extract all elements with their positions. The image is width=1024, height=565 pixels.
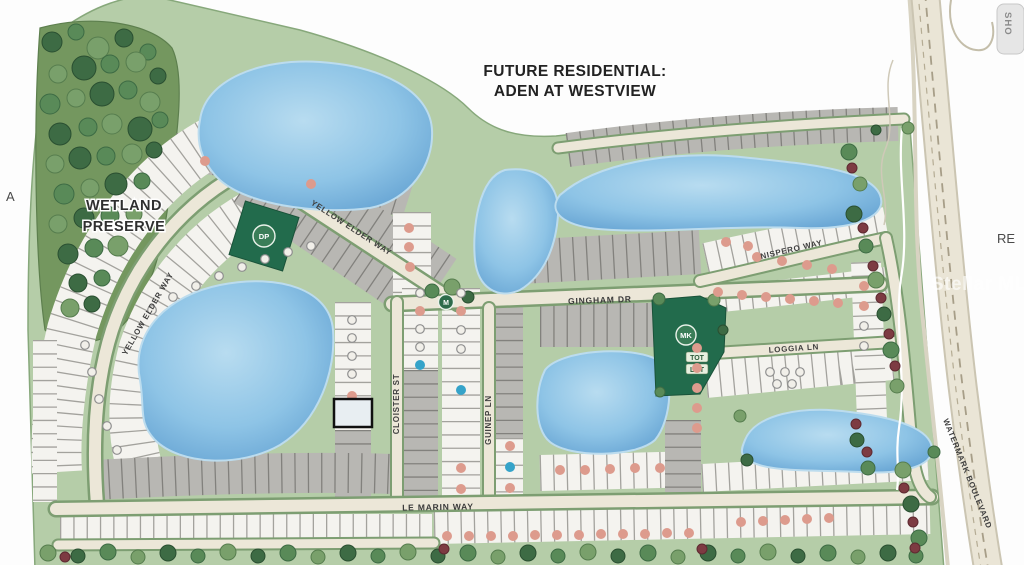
tree-icon: [84, 296, 100, 312]
tree-icon: [40, 94, 60, 114]
tree-icon: [640, 545, 656, 561]
tree-icon: [49, 123, 71, 145]
tree-icon: [140, 92, 160, 112]
tree-icon: [851, 550, 865, 564]
lot-marker-sold: [758, 516, 768, 526]
bush-icon: [862, 447, 872, 457]
tree-icon: [928, 446, 940, 458]
tree-icon: [108, 236, 128, 256]
lot-marker-available: [788, 380, 797, 389]
lot-marker-sold: [692, 343, 702, 353]
lot-marker-sold: [505, 441, 515, 451]
lot-marker-available: [766, 368, 775, 377]
lot-marker-sold: [761, 292, 771, 302]
lot-marker-sold: [662, 528, 672, 538]
tree-icon: [105, 173, 127, 195]
lot-marker-sold: [721, 237, 731, 247]
lot-marker-sold: [833, 298, 843, 308]
lot-marker-sold: [505, 483, 515, 493]
lot-marker-sold: [200, 156, 210, 166]
bush-icon: [876, 293, 886, 303]
tree-icon: [67, 89, 85, 107]
lot-marker-sold: [456, 306, 466, 316]
tree-icon: [655, 387, 665, 397]
tree-icon: [90, 82, 114, 106]
tree-icon: [146, 142, 162, 158]
amenity-m-label: M: [443, 300, 449, 307]
bush-icon: [890, 361, 900, 371]
lot-marker-available: [416, 325, 425, 334]
tree-icon: [101, 55, 119, 73]
lot-marker-available: [860, 322, 869, 331]
tree-icon: [160, 545, 176, 561]
lot-marker-sold: [692, 383, 702, 393]
lot-marker-available: [416, 289, 425, 298]
tree-icon: [871, 125, 881, 135]
lot-marker-available: [284, 248, 293, 257]
lot-marker-highlight: [415, 360, 425, 370]
tree-icon: [850, 433, 864, 447]
tree-icon: [71, 549, 85, 563]
tree-icon: [81, 179, 99, 197]
lot-marker-available: [796, 368, 805, 377]
street-label-guinep: GUINEP LN: [484, 395, 493, 445]
tree-icon: [150, 68, 166, 84]
lot-marker-highlight: [505, 462, 515, 472]
lot-marker-sold: [737, 290, 747, 300]
lot-marker-sold: [736, 517, 746, 527]
lot-marker-sold: [684, 528, 694, 538]
tree-icon: [131, 550, 145, 564]
lot-marker-sold: [824, 513, 834, 523]
edge-text-left: A: [6, 189, 15, 204]
lot-marker-available: [457, 326, 466, 335]
tree-icon: [902, 122, 914, 134]
lot-marker-sold: [555, 465, 565, 475]
tree-icon: [69, 147, 91, 169]
lot-marker-available: [860, 342, 869, 351]
lot-marker-sold: [859, 301, 869, 311]
lot-marker-sold: [442, 531, 452, 541]
tree-icon: [895, 462, 911, 478]
tree-icon: [880, 545, 896, 561]
tree-icon: [115, 29, 133, 47]
lot-marker-sold: [692, 423, 702, 433]
tree-icon: [311, 550, 325, 564]
tree-icon: [861, 461, 875, 475]
lot-marker-sold: [405, 262, 415, 272]
lot-marker-sold: [464, 531, 474, 541]
tree-icon: [791, 549, 805, 563]
lot-marker-sold: [743, 241, 753, 251]
lot-marker-sold: [640, 529, 650, 539]
lot-marker-sold: [785, 294, 795, 304]
site-plan-map: DP MK TOT LOT M FUTURE RESIDENTIAL: ADEN…: [0, 0, 1024, 565]
tree-icon: [868, 272, 884, 288]
tree-icon: [72, 56, 96, 80]
lot-marker-sold: [713, 287, 723, 297]
lot-marker-available: [81, 341, 90, 350]
tree-icon: [49, 65, 67, 83]
lot-marker-available: [348, 316, 357, 325]
tree-icon: [741, 454, 753, 466]
tree-icon: [128, 117, 152, 141]
lot-marker-sold: [580, 465, 590, 475]
tree-icon: [859, 239, 873, 253]
tree-icon: [58, 244, 78, 264]
lot-marker-sold: [780, 515, 790, 525]
lot-marker-sold: [802, 514, 812, 524]
road-le-marin-south: [58, 543, 434, 545]
tree-icon: [54, 184, 74, 204]
road-le-marin-way: [56, 497, 932, 509]
tree-icon: [61, 299, 79, 317]
tree-icon: [890, 379, 904, 393]
lot-marker-available: [113, 446, 122, 455]
lot-marker-available: [773, 380, 782, 389]
tree-icon: [653, 293, 665, 305]
lot-marker-highlight: [456, 385, 466, 395]
lot-marker-sold: [692, 363, 702, 373]
bush-icon: [908, 517, 918, 527]
lot-marker-available: [88, 368, 97, 377]
highlighted-lot[interactable]: [334, 399, 372, 427]
lot-marker-sold: [802, 260, 812, 270]
tree-icon: [119, 81, 137, 99]
market-label: MK: [680, 331, 692, 340]
corner-tab[interactable]: SHO: [997, 4, 1024, 54]
tree-icon: [220, 544, 236, 560]
lot-marker-sold: [692, 403, 702, 413]
tree-icon: [97, 147, 115, 165]
tree-icon: [191, 549, 205, 563]
tree-icon: [903, 496, 919, 512]
tree-icon: [520, 545, 536, 561]
tree-icon: [883, 342, 899, 358]
tree-icon: [718, 325, 728, 335]
bush-icon: [884, 329, 894, 339]
tree-icon: [68, 24, 84, 40]
lot-marker-available: [348, 370, 357, 379]
tree-icon: [102, 114, 122, 134]
bush-icon: [910, 543, 920, 553]
tree-icon: [126, 52, 146, 72]
tree-icon: [79, 118, 97, 136]
tree-icon: [94, 270, 110, 286]
lot-marker-available: [261, 255, 270, 264]
tree-icon: [611, 549, 625, 563]
tree-icon: [40, 545, 56, 561]
tree-icon: [853, 177, 867, 191]
lot-marker-sold: [456, 463, 466, 473]
tree-icon: [580, 544, 596, 560]
bush-icon: [60, 552, 70, 562]
bush-icon: [858, 223, 868, 233]
future-residential-title-line1: FUTURE RESIDENTIAL:: [483, 63, 666, 80]
lot-marker-available: [457, 345, 466, 354]
lot-marker-sold: [404, 223, 414, 233]
tree-icon: [371, 549, 385, 563]
lot-marker-sold: [552, 530, 562, 540]
tree-icon: [846, 206, 862, 222]
bush-icon: [697, 544, 707, 554]
wetland-label-line2: PRESERVE: [83, 219, 166, 235]
lot-marker-available: [103, 422, 112, 431]
tree-icon: [877, 307, 891, 321]
tree-icon: [841, 144, 857, 160]
lot-marker-sold: [655, 463, 665, 473]
lot-marker-available: [457, 289, 466, 298]
lot-marker-available: [781, 368, 790, 377]
tree-icon: [491, 550, 505, 564]
corner-tab-label: SHO: [1002, 12, 1013, 36]
lot-marker-sold: [605, 464, 615, 474]
bush-icon: [851, 419, 861, 429]
lot-marker-sold: [596, 529, 606, 539]
site-plan-svg: DP MK TOT LOT M FUTURE RESIDENTIAL: ADEN…: [0, 0, 1024, 565]
lot-marker-available: [416, 343, 425, 352]
street-label-le-marin: LE MARIN WAY: [402, 501, 474, 512]
future-residential-title-line2: ADEN AT WESTVIEW: [494, 83, 656, 100]
tree-icon: [85, 239, 103, 257]
tree-icon: [460, 545, 476, 561]
wetland-label-line1: WETLAND: [86, 198, 162, 214]
lot-marker-available: [238, 263, 247, 272]
lot-marker-sold: [777, 256, 787, 266]
tree-icon: [251, 549, 265, 563]
tree-icon: [152, 112, 168, 128]
bush-icon: [439, 544, 449, 554]
bush-icon: [868, 261, 878, 271]
lot-marker-sold: [530, 530, 540, 540]
tree-icon: [69, 274, 87, 292]
tree-icon: [425, 284, 439, 298]
pond-northwest: [199, 62, 433, 211]
bush-icon: [899, 483, 909, 493]
lot-marker-available: [348, 352, 357, 361]
tree-icon: [400, 544, 416, 560]
tree-icon: [551, 549, 565, 563]
lot-marker-sold: [486, 531, 496, 541]
lot-marker-sold: [827, 264, 837, 274]
lot-marker-available: [307, 242, 316, 251]
tree-icon: [122, 144, 142, 164]
lot-marker-sold: [306, 179, 316, 189]
tree-icon: [340, 545, 356, 561]
tree-icon: [100, 544, 116, 560]
lot-marker-sold: [415, 306, 425, 316]
lot-marker-sold: [404, 242, 414, 252]
lot-marker-sold: [630, 463, 640, 473]
bush-icon: [847, 163, 857, 173]
tree-icon: [760, 544, 776, 560]
street-label-cloister: CLOISTER ST: [392, 374, 401, 435]
stellar-mls-watermark: Stellar MLS: [931, 274, 1024, 295]
lot-marker-sold: [859, 281, 869, 291]
tree-icon: [49, 215, 67, 233]
tree-icon: [731, 549, 745, 563]
tot-lot-label-1: TOT: [690, 355, 705, 362]
tree-icon: [820, 545, 836, 561]
lot-marker-available: [95, 395, 104, 404]
lot-marker-sold: [508, 531, 518, 541]
tree-icon: [280, 545, 296, 561]
tree-icon: [42, 32, 62, 52]
lot-marker-available: [348, 334, 357, 343]
edge-text-right: RE: [997, 231, 1015, 246]
dog-park-label: DP: [259, 232, 269, 241]
tree-icon: [134, 173, 150, 189]
tree-icon: [734, 410, 746, 422]
lot-marker-available: [192, 282, 201, 291]
lot-marker-sold: [574, 530, 584, 540]
lot-marker-sold: [456, 484, 466, 494]
lot-marker-sold: [809, 296, 819, 306]
tree-icon: [46, 155, 64, 173]
pond-center: [537, 351, 669, 453]
tree-icon: [671, 550, 685, 564]
lot-marker-sold: [618, 529, 628, 539]
lot-marker-available: [215, 272, 224, 281]
lot-marker-available: [169, 293, 178, 302]
